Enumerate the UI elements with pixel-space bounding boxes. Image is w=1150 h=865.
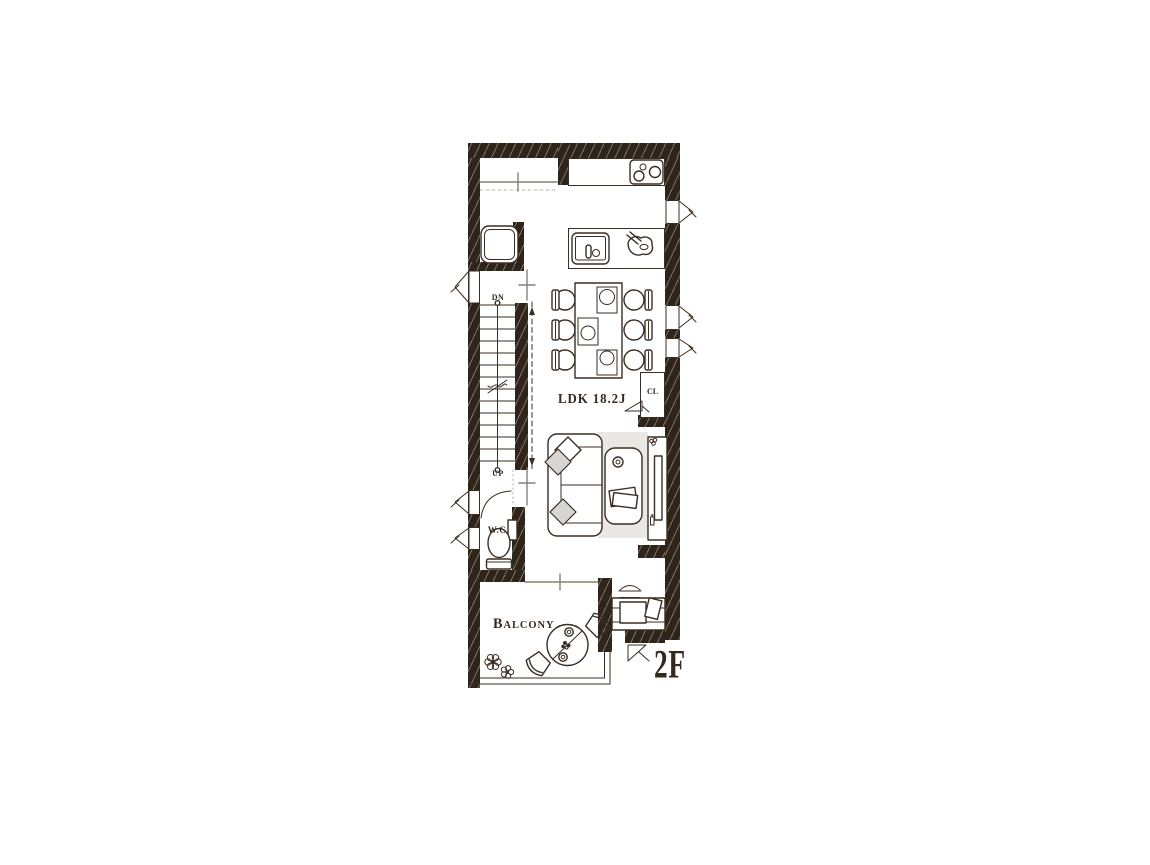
flowers-icon: [485, 655, 514, 679]
cup-icon: [559, 653, 567, 661]
stair-void-dashed-line: [529, 302, 535, 470]
window-icon-right-2: [666, 306, 696, 330]
floor-label: 2F: [654, 645, 686, 685]
stairs: [480, 301, 515, 473]
dining-set: [552, 283, 652, 378]
kitchen-entry-marker: [519, 270, 535, 300]
tv-icon: [655, 456, 663, 520]
wc-label: W.C: [480, 526, 514, 535]
closet-door-icon: [625, 401, 649, 412]
kitchen-opening-line: [480, 173, 558, 191]
wc-door-arc: [481, 491, 511, 518]
stove-icon: [630, 160, 663, 184]
plate-icon: [627, 232, 652, 255]
balcony-railing: [470, 650, 610, 684]
stairs-down-label: DN: [482, 294, 514, 302]
sink-icon: [572, 233, 609, 264]
room-label: LDK 18.2J: [558, 393, 626, 407]
stairs-up-label: UP: [482, 470, 514, 478]
magazine-icon: [609, 487, 638, 508]
cup-icon: [613, 457, 623, 467]
floor-plan: DN UP W.C CL LDK 18.2J Balcony 2F: [468, 140, 690, 700]
window-icon-left-2: [451, 491, 480, 515]
window-icon-left-3: [451, 528, 480, 550]
window-icon-right-3: [666, 339, 696, 358]
sofa: [545, 434, 602, 536]
balcony-door-marker: [525, 574, 598, 590]
hall-opening-marker: [513, 468, 535, 505]
balcony-chair-1: [584, 610, 613, 639]
window-icon-nook: [628, 645, 649, 661]
balcony-label: Balcony: [493, 617, 554, 632]
window-icon-left-1: [451, 271, 480, 303]
tv-board: [648, 437, 667, 540]
coffee-table: [605, 448, 642, 524]
floor-plan-page: DN UP W.C CL LDK 18.2J Balcony 2F: [0, 0, 1150, 865]
laptop-icon: [620, 602, 646, 623]
cup-icon: [565, 628, 573, 636]
fridge-icon: [481, 226, 518, 263]
window-icon-right-1: [666, 201, 696, 224]
balcony-chair-2: [523, 650, 552, 679]
closet-label: CL: [640, 388, 665, 396]
